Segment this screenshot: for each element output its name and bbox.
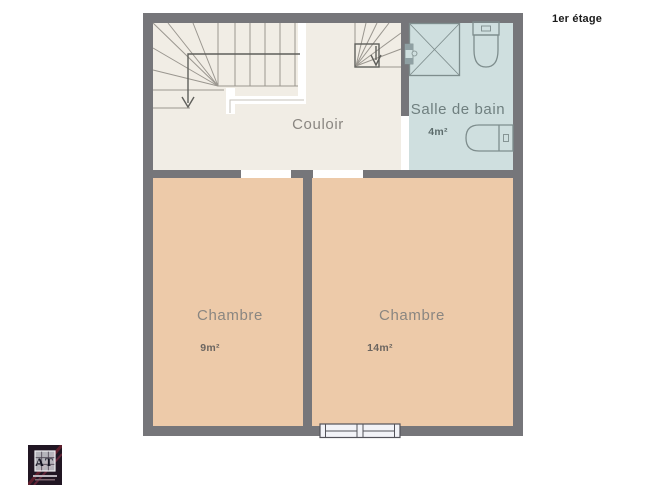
wall-bathroom xyxy=(401,23,409,116)
wall-left xyxy=(143,13,153,436)
room-area-chambre-2: 14m² xyxy=(367,342,393,354)
room-chambre-2-floor xyxy=(312,178,513,426)
logo-text-line xyxy=(35,479,55,481)
wall-top xyxy=(143,13,523,23)
logo-text-line xyxy=(33,475,57,477)
stair-opening-band xyxy=(298,23,306,100)
door-opening-chambre-2 xyxy=(313,170,363,178)
agency-logo: AT xyxy=(28,445,62,485)
floor-plan-page: 1er étage xyxy=(0,0,667,500)
door-opening-chambre-1 xyxy=(241,170,291,178)
floor-plan: Couloir Salle de bain 4m² Chambre 9m² Ch… xyxy=(0,0,667,500)
room-chambre-1-floor xyxy=(153,178,303,426)
room-area-chambre-1: 9m² xyxy=(200,342,220,354)
room-label-couloir: Couloir xyxy=(292,116,344,133)
door-opening-salle-de-bain xyxy=(401,116,409,170)
wall-right xyxy=(513,13,523,436)
logo-letters: AT xyxy=(35,455,55,469)
wall-bedroom-divider xyxy=(303,178,312,426)
room-label-chambre-1: Chambre xyxy=(197,307,263,324)
room-label-salle-de-bain: Salle de bain xyxy=(411,101,506,118)
room-area-salle-de-bain: 4m² xyxy=(428,126,448,138)
window xyxy=(320,424,400,438)
room-label-chambre-2: Chambre xyxy=(379,307,445,324)
